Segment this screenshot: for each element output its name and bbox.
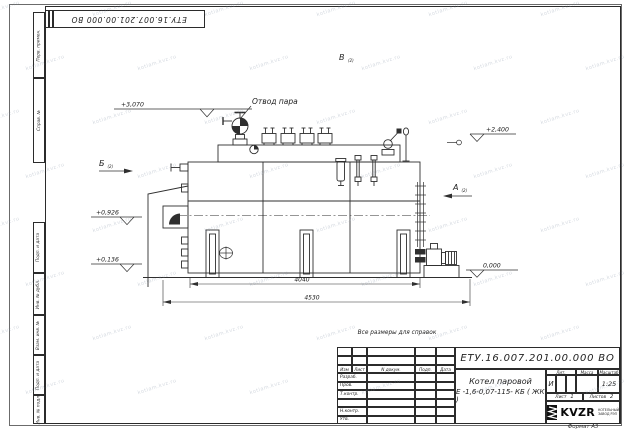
manhole [219,247,233,260]
view-a-ref: (2) [462,188,468,193]
rear-flange-stack [415,182,426,263]
view-b-ref: (2) [108,164,114,169]
view-v-ref: (2) [348,58,354,63]
safety-valves [262,128,332,145]
support-legs [206,230,410,278]
dimension-lines [163,278,470,307]
view-a-label: А [452,183,458,192]
drawing-sheet: { "sheet": { "top_stamp": "ЕТУ.16.007.20… [0,0,644,430]
elevation-marks [91,109,518,277]
burner-door [163,206,188,228]
elevation-3070: +3,070 [121,102,144,109]
elevation-0136: +0,136 [96,257,119,264]
steam-valve [223,113,248,146]
lever-valve [382,128,410,161]
boiler-general-view-drawing: Отвод пара В (2) Б (2) А (2) +3,070 +2,4… [0,0,644,430]
steam-outlet-label: Отвод пара [252,97,298,106]
view-b-label: Б [99,159,105,168]
elevation-0926: +0,926 [96,210,119,217]
pressure-gauge [250,145,258,153]
elevation-2400: +2,400 [486,127,509,134]
view-v-label: В [339,53,345,62]
elevation-0000: 0,000 [483,263,501,270]
water-level-gauges [336,156,377,187]
dim-4040: 4040 [294,277,309,284]
dim-4530: 4530 [304,295,319,302]
feed-pump [424,244,459,278]
flue-duct [148,186,188,287]
view-arrows [99,169,472,199]
